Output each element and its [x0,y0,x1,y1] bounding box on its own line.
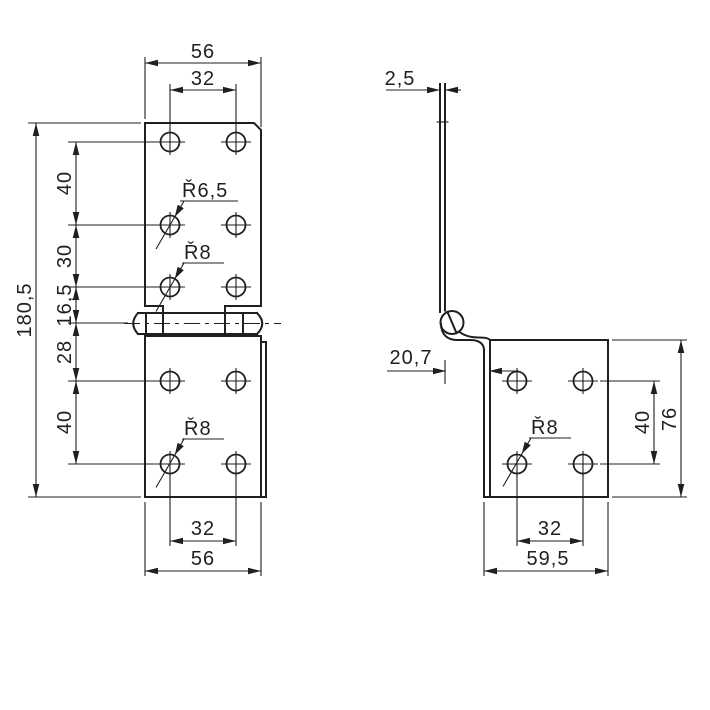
hinge-barrel [124,313,281,334]
dim-side-thickness: 2,5 [385,68,461,90]
dim-front-hole-spacing-bottom: 32 [170,473,236,546]
dim-label: 32 [191,68,215,90]
hole [568,368,598,394]
label-front-radius-bottom: Ř8 [156,417,224,488]
label-front-radius-mid: Ř8 [156,241,224,312]
dim-label: 16,5 [54,284,76,327]
dim-label: 30 [54,244,76,268]
dim-front-hole-spacing-top: 32 [170,68,236,134]
leader-arrow [175,205,184,217]
dim-label: 20,7 [390,347,433,369]
dim-label: 2,5 [385,68,416,90]
hole [221,274,251,300]
leader-arrow [175,443,184,455]
dim-label: 56 [191,548,215,570]
dim-label: 56 [191,41,215,63]
technical-drawing: 56 32 180,5 40 30 16,5 28 40 [0,0,710,710]
label-front-radius-top: Ř6,5 [156,179,238,249]
pin-slash [448,312,457,333]
hole [221,212,251,238]
leader-arrow [175,267,184,279]
dim-label: 40 [632,410,654,434]
radius-label: Ř8 [184,417,212,440]
side-view: 2,5 20,7 Ř8 40 76 [385,68,687,576]
dim-label: 76 [659,407,681,431]
radius-label: Ř8 [184,241,212,264]
dim-front-chain: 40 30 16,5 28 40 [54,142,155,464]
dim-label: 40 [54,171,76,195]
radius-label: Ř6,5 [182,179,228,202]
radius-label: Ř8 [531,416,559,439]
leader-arrow [522,442,531,454]
dim-label: 32 [538,518,562,540]
hole [502,368,532,394]
label-side-radius: Ř8 [503,416,571,487]
front-lower-leaf [145,336,266,497]
front-view: 56 32 180,5 40 30 16,5 28 40 [14,41,281,576]
dim-side-hole-spacing-bottom: 32 [517,473,583,546]
dim-label: 28 [54,340,76,364]
dim-label: 32 [191,518,215,540]
dim-side-offset: 20,7 [387,347,519,384]
hole [221,368,251,394]
hole [155,368,185,394]
hinge-pin-section [441,311,464,334]
dim-label: 180,5 [14,282,36,337]
side-leaf-vertical [437,84,449,312]
dim-label: 59,5 [527,548,570,570]
dim-front-total-height: 180,5 [14,123,141,497]
dim-label: 40 [54,410,76,434]
